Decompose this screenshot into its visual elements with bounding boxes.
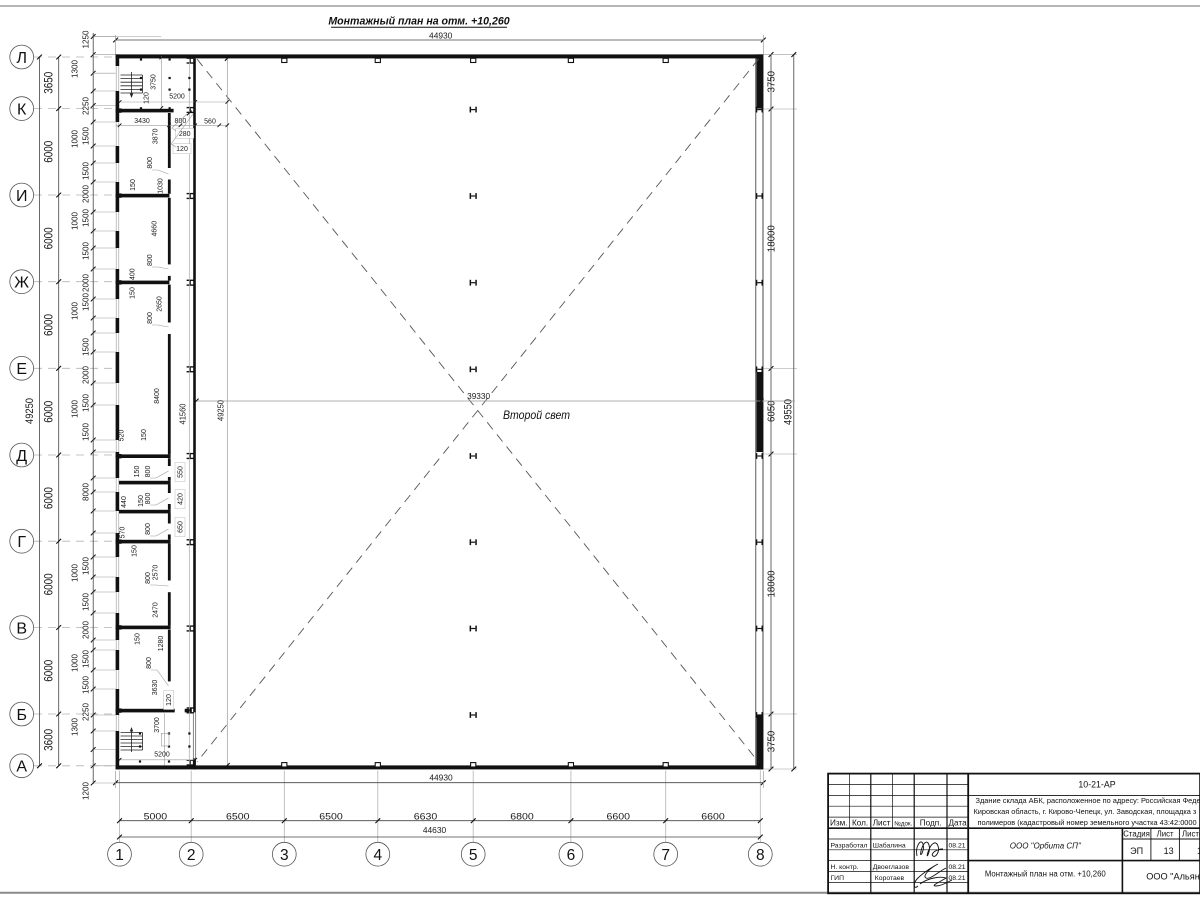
svg-text:2000: 2000 [81,620,90,639]
svg-text:4660: 4660 [152,221,159,237]
svg-text:Дата: Дата [949,819,968,828]
svg-text:6: 6 [567,847,576,864]
svg-text:1500: 1500 [81,241,90,260]
svg-text:Г: Г [17,534,26,551]
svg-text:1000: 1000 [71,653,80,672]
svg-text:5000: 5000 [144,811,168,822]
svg-text:2000: 2000 [81,184,90,203]
svg-text:44930: 44930 [429,773,453,783]
svg-text:Подп.: Подп. [920,819,942,828]
svg-text:Монтажный план на отм. +10,260: Монтажный план на отм. +10,260 [985,870,1107,879]
svg-text:5200: 5200 [169,94,185,101]
svg-text:10-21-АР: 10-21-АР [1078,780,1115,790]
svg-text:650: 650 [178,521,185,533]
svg-text:№док.: №док. [894,820,912,827]
svg-text:150: 150 [138,495,145,507]
svg-text:Лист: Лист [873,819,891,828]
svg-text:49250: 49250 [215,400,225,421]
svg-text:4: 4 [373,847,382,864]
svg-text:6630: 6630 [414,811,438,822]
svg-text:Листов: Листов [1182,830,1200,839]
svg-text:150: 150 [130,287,137,299]
svg-text:08.21: 08.21 [949,875,966,882]
svg-text:Ж: Ж [14,275,29,292]
svg-text:1500: 1500 [81,649,90,668]
svg-text:Изм.: Изм. [830,819,848,828]
svg-text:2250: 2250 [81,96,90,115]
svg-text:2650: 2650 [157,296,164,312]
svg-text:3630: 3630 [152,680,159,696]
svg-text:400: 400 [130,268,137,280]
svg-text:2000: 2000 [81,365,90,384]
svg-text:1000: 1000 [71,129,80,148]
svg-text:3: 3 [280,847,289,864]
svg-text:150: 150 [135,633,142,645]
svg-text:6050: 6050 [767,400,778,422]
svg-text:2000: 2000 [81,273,90,292]
svg-text:1300: 1300 [71,59,80,78]
svg-text:ЭП: ЭП [1130,846,1143,856]
svg-text:3870: 3870 [153,128,160,144]
svg-text:8400: 8400 [154,388,161,404]
svg-text:6600: 6600 [701,811,725,822]
svg-text:120: 120 [176,146,188,153]
svg-text:1000: 1000 [71,301,80,320]
svg-text:44930: 44930 [429,31,453,41]
svg-text:1500: 1500 [81,675,90,694]
svg-text:6000: 6000 [42,141,56,163]
svg-text:420: 420 [178,493,185,505]
svg-text:18000: 18000 [767,570,778,597]
svg-text:5200: 5200 [154,752,170,759]
svg-text:550: 550 [178,466,185,478]
svg-text:18000: 18000 [767,225,778,252]
svg-text:Кол.: Кол. [852,819,868,828]
svg-text:6600: 6600 [607,811,631,822]
svg-text:К: К [17,101,27,118]
svg-text:6000: 6000 [42,314,56,336]
svg-text:Е: Е [16,361,27,378]
svg-text:520: 520 [119,430,126,442]
svg-text:1280: 1280 [158,636,165,652]
svg-text:3650: 3650 [42,72,56,94]
svg-text:В: В [16,620,27,637]
svg-text:1000: 1000 [71,563,80,582]
svg-text:6000: 6000 [42,487,56,509]
svg-text:1500: 1500 [81,208,90,227]
svg-text:8000: 8000 [81,482,90,501]
svg-text:Б: Б [16,707,27,724]
svg-text:1030: 1030 [157,178,164,194]
svg-text:800: 800 [145,466,152,478]
svg-text:Коротаев: Коротаев [875,875,905,882]
svg-text:120: 120 [166,694,173,706]
svg-text:Н. контр.: Н. контр. [831,864,859,871]
svg-text:Кировская область, г. Кирово-Ч: Кировская область, г. Кирово-Чепецк, ул.… [974,807,1197,816]
svg-text:6500: 6500 [319,811,343,822]
svg-text:3430: 3430 [134,118,150,125]
svg-text:440: 440 [121,496,128,508]
svg-text:Двоеглазов: Двоеглазов [873,864,910,871]
svg-text:1500: 1500 [81,422,90,441]
svg-text:Д: Д [16,448,27,465]
svg-text:полимеров (кадастровый номер з: полимеров (кадастровый номер земельного … [978,818,1197,827]
svg-text:ООО "Орбита СП": ООО "Орбита СП" [1010,842,1082,851]
svg-text:6500: 6500 [226,811,250,822]
svg-text:800: 800 [145,493,152,505]
svg-text:1300: 1300 [71,717,80,736]
svg-text:1000: 1000 [71,211,80,230]
svg-text:800: 800 [147,157,154,169]
svg-text:800: 800 [145,572,152,584]
svg-text:1250: 1250 [81,30,90,49]
svg-text:150: 150 [132,545,139,557]
svg-text:800: 800 [147,254,154,266]
svg-text:6000: 6000 [42,660,56,682]
svg-text:6000: 6000 [42,573,56,595]
svg-text:41560: 41560 [178,403,188,424]
svg-text:И: И [16,188,28,205]
svg-text:1500: 1500 [81,126,90,145]
svg-text:08.21: 08.21 [949,843,966,850]
svg-text:3750: 3750 [767,71,778,93]
svg-text:280: 280 [179,131,191,138]
svg-text:08.21: 08.21 [949,864,966,871]
svg-text:49250: 49250 [24,398,36,424]
svg-text:1500: 1500 [81,161,90,180]
svg-text:7: 7 [661,847,670,864]
svg-text:Шабалина: Шабалина [873,841,906,849]
svg-text:2570: 2570 [153,565,160,581]
svg-text:Лист: Лист [1157,830,1174,839]
svg-text:800: 800 [145,523,152,535]
svg-text:1: 1 [115,847,124,864]
svg-text:6800: 6800 [510,811,534,822]
svg-text:Здание склада АБК, расположенн: Здание склада АБК, расположенное по адре… [976,796,1200,805]
svg-text:8: 8 [756,847,765,864]
svg-text:2250: 2250 [81,702,90,721]
svg-text:120: 120 [144,92,151,104]
svg-text:1500: 1500 [81,592,90,611]
svg-text:1500: 1500 [81,393,90,412]
svg-text:560: 560 [204,119,216,126]
svg-text:3750: 3750 [151,74,158,90]
svg-text:800: 800 [147,312,154,324]
svg-text:39330: 39330 [467,392,491,401]
svg-text:Разработал: Разработал [831,841,868,849]
svg-text:2470: 2470 [153,602,160,618]
svg-text:44630: 44630 [423,825,447,835]
svg-text:5: 5 [469,847,478,864]
svg-text:800: 800 [146,657,153,669]
svg-text:Л: Л [16,50,27,67]
svg-text:49550: 49550 [783,399,795,425]
svg-text:3700: 3700 [154,717,161,733]
svg-text:А: А [16,759,27,776]
svg-text:1500: 1500 [81,556,90,575]
svg-text:3750: 3750 [767,730,778,752]
svg-text:150: 150 [130,179,137,191]
svg-text:3600: 3600 [42,729,56,751]
svg-text:150: 150 [141,429,148,441]
svg-text:ООО "Альянс Групп: ООО "Альянс Групп [1146,871,1200,881]
svg-text:1000: 1000 [71,399,80,418]
svg-text:Монтажный план на отм. +10,260: Монтажный план на отм. +10,260 [328,16,509,28]
svg-text:1200: 1200 [81,781,90,800]
svg-text:13: 13 [1164,846,1174,856]
svg-text:Второй свет: Второй свет [503,408,570,422]
svg-text:6000: 6000 [42,400,56,422]
svg-text:2: 2 [187,847,196,864]
svg-text:Стадия: Стадия [1123,830,1150,839]
svg-text:ГИП: ГИП [831,875,845,882]
svg-text:1500: 1500 [81,292,90,311]
svg-text:570: 570 [120,527,127,539]
svg-text:150: 150 [134,466,141,478]
svg-text:1500: 1500 [81,337,90,356]
svg-text:6000: 6000 [42,227,56,249]
